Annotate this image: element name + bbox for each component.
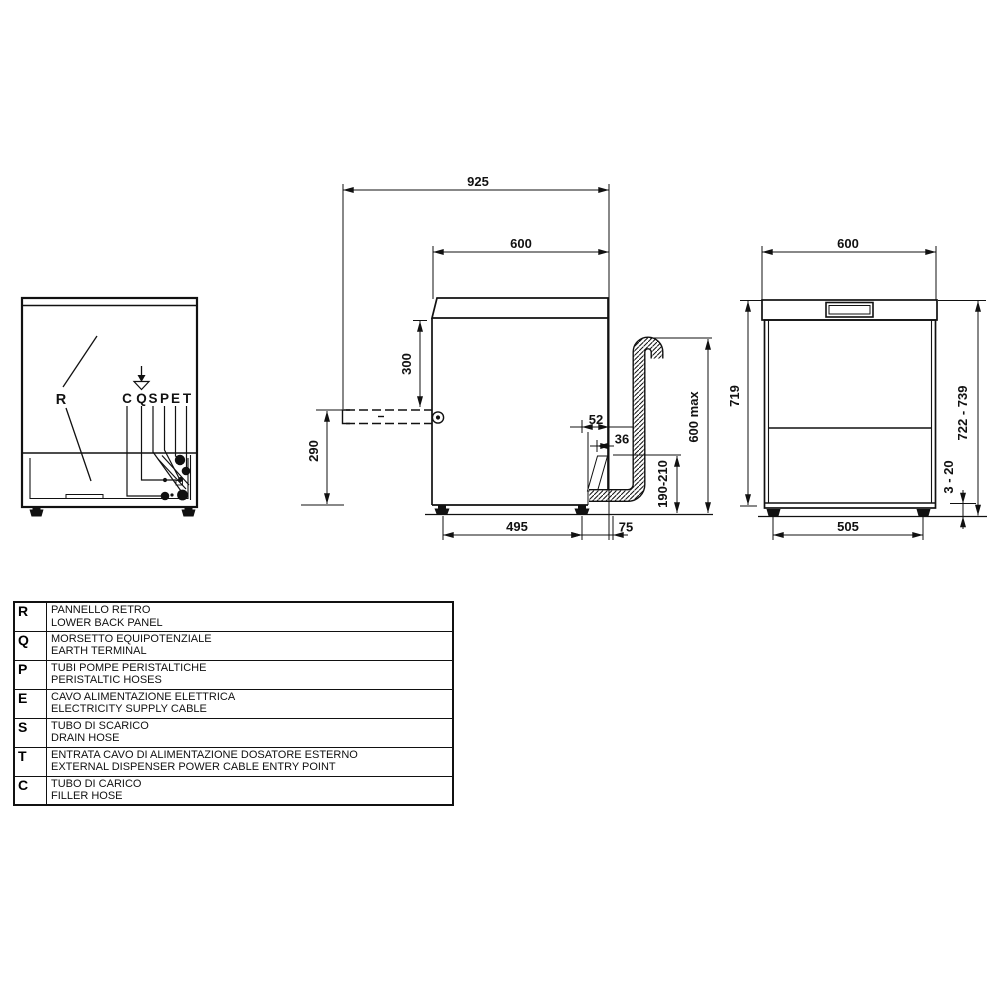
connection-label-p: P bbox=[160, 391, 169, 406]
front-view-dim-labels: 600 719 722 - 739 3 - 20 505 bbox=[727, 236, 970, 534]
table-row: C TUBO DI CARICO FILLER HOSE bbox=[14, 776, 453, 805]
connection-label-q: Q bbox=[136, 391, 147, 406]
legend-key: S bbox=[14, 718, 47, 747]
front-feet bbox=[767, 509, 931, 516]
legend-key: E bbox=[14, 689, 47, 718]
technical-drawing-page: R C Q S P E T bbox=[0, 0, 1000, 1000]
legend-text-it: TUBI POMPE PERISTALTICHE bbox=[51, 662, 448, 675]
dim-719: 719 bbox=[727, 385, 742, 407]
dim-300: 300 bbox=[399, 353, 414, 375]
dim-52: 52 bbox=[589, 412, 603, 427]
control-panel bbox=[826, 303, 873, 318]
dim-600-front: 600 bbox=[837, 236, 859, 251]
legend-text-en: PERISTALTIC HOSES bbox=[51, 674, 448, 687]
connection-label-s: S bbox=[148, 391, 157, 406]
legend-text-it: MORSETTO EQUIPOTENZIALE bbox=[51, 633, 448, 646]
table-row: R PANNELLO RETRO LOWER BACK PANEL bbox=[14, 602, 453, 631]
legend-text-it: PANNELLO RETRO bbox=[51, 604, 448, 617]
dim-190-210: 190-210 bbox=[655, 460, 670, 508]
dim-600-body: 600 bbox=[510, 236, 532, 251]
open-door bbox=[343, 410, 433, 424]
rear-panel-label: R bbox=[56, 392, 67, 408]
legend-text-it: ENTRATA CAVO DI ALIMENTAZIONE DOSATORE E… bbox=[51, 749, 448, 762]
legend-table: R PANNELLO RETRO LOWER BACK PANEL Q MORS… bbox=[13, 601, 454, 806]
connection-label-t: T bbox=[183, 391, 192, 406]
legend-key: T bbox=[14, 747, 47, 776]
legend-key: P bbox=[14, 660, 47, 689]
table-row: Q MORSETTO EQUIPOTENZIALE EARTH TERMINAL bbox=[14, 631, 453, 660]
legend-text-en: FILLER HOSE bbox=[51, 790, 448, 803]
dim-600-max: 600 max bbox=[686, 391, 701, 443]
front-view-dimensions bbox=[740, 246, 986, 540]
dim-75: 75 bbox=[619, 520, 633, 535]
dim-925: 925 bbox=[467, 174, 489, 189]
legend-text-en: EXTERNAL DISPENSER POWER CABLE ENTRY POI… bbox=[51, 761, 448, 774]
side-feet bbox=[435, 505, 590, 514]
dim-290: 290 bbox=[306, 440, 321, 462]
legend-key: Q bbox=[14, 631, 47, 660]
dim-722-739: 722 - 739 bbox=[955, 386, 970, 441]
table-row: E CAVO ALIMENTAZIONE ELETTRICA ELECTRICI… bbox=[14, 689, 453, 718]
dim-36: 36 bbox=[615, 432, 629, 447]
legend-text-it: TUBO DI CARICO bbox=[51, 778, 448, 791]
drain-stub bbox=[588, 456, 608, 491]
rear-view bbox=[22, 298, 197, 517]
connection-label-e: E bbox=[171, 391, 180, 406]
side-view-dimensions bbox=[301, 184, 712, 540]
table-row: P TUBI POMPE PERISTALTICHE PERISTALTIC H… bbox=[14, 660, 453, 689]
dimension-drawing: R C Q S P E T bbox=[0, 0, 1000, 1000]
legend-text-en: DRAIN HOSE bbox=[51, 732, 448, 745]
legend-text-it: CAVO ALIMENTAZIONE ELETTRICA bbox=[51, 691, 448, 704]
legend-key: R bbox=[14, 602, 47, 631]
dim-505: 505 bbox=[837, 519, 859, 534]
earth-symbol-icon bbox=[134, 366, 149, 390]
dim-3-20: 3 - 20 bbox=[941, 460, 956, 493]
legend-text-en: EARTH TERMINAL bbox=[51, 645, 448, 658]
connection-label-c: C bbox=[122, 391, 132, 406]
legend-key: C bbox=[14, 776, 47, 805]
dim-495: 495 bbox=[506, 519, 528, 534]
table-row: S TUBO DI SCARICO DRAIN HOSE bbox=[14, 718, 453, 747]
legend-text-en: LOWER BACK PANEL bbox=[51, 617, 448, 630]
legend-text-en: ELECTRICITY SUPPLY CABLE bbox=[51, 703, 448, 716]
legend-text-it: TUBO DI SCARICO bbox=[51, 720, 448, 733]
table-row: T ENTRATA CAVO DI ALIMENTAZIONE DOSATORE… bbox=[14, 747, 453, 776]
connection-leaders bbox=[127, 406, 189, 496]
rear-view-labels: R C Q S P E T bbox=[56, 391, 192, 408]
